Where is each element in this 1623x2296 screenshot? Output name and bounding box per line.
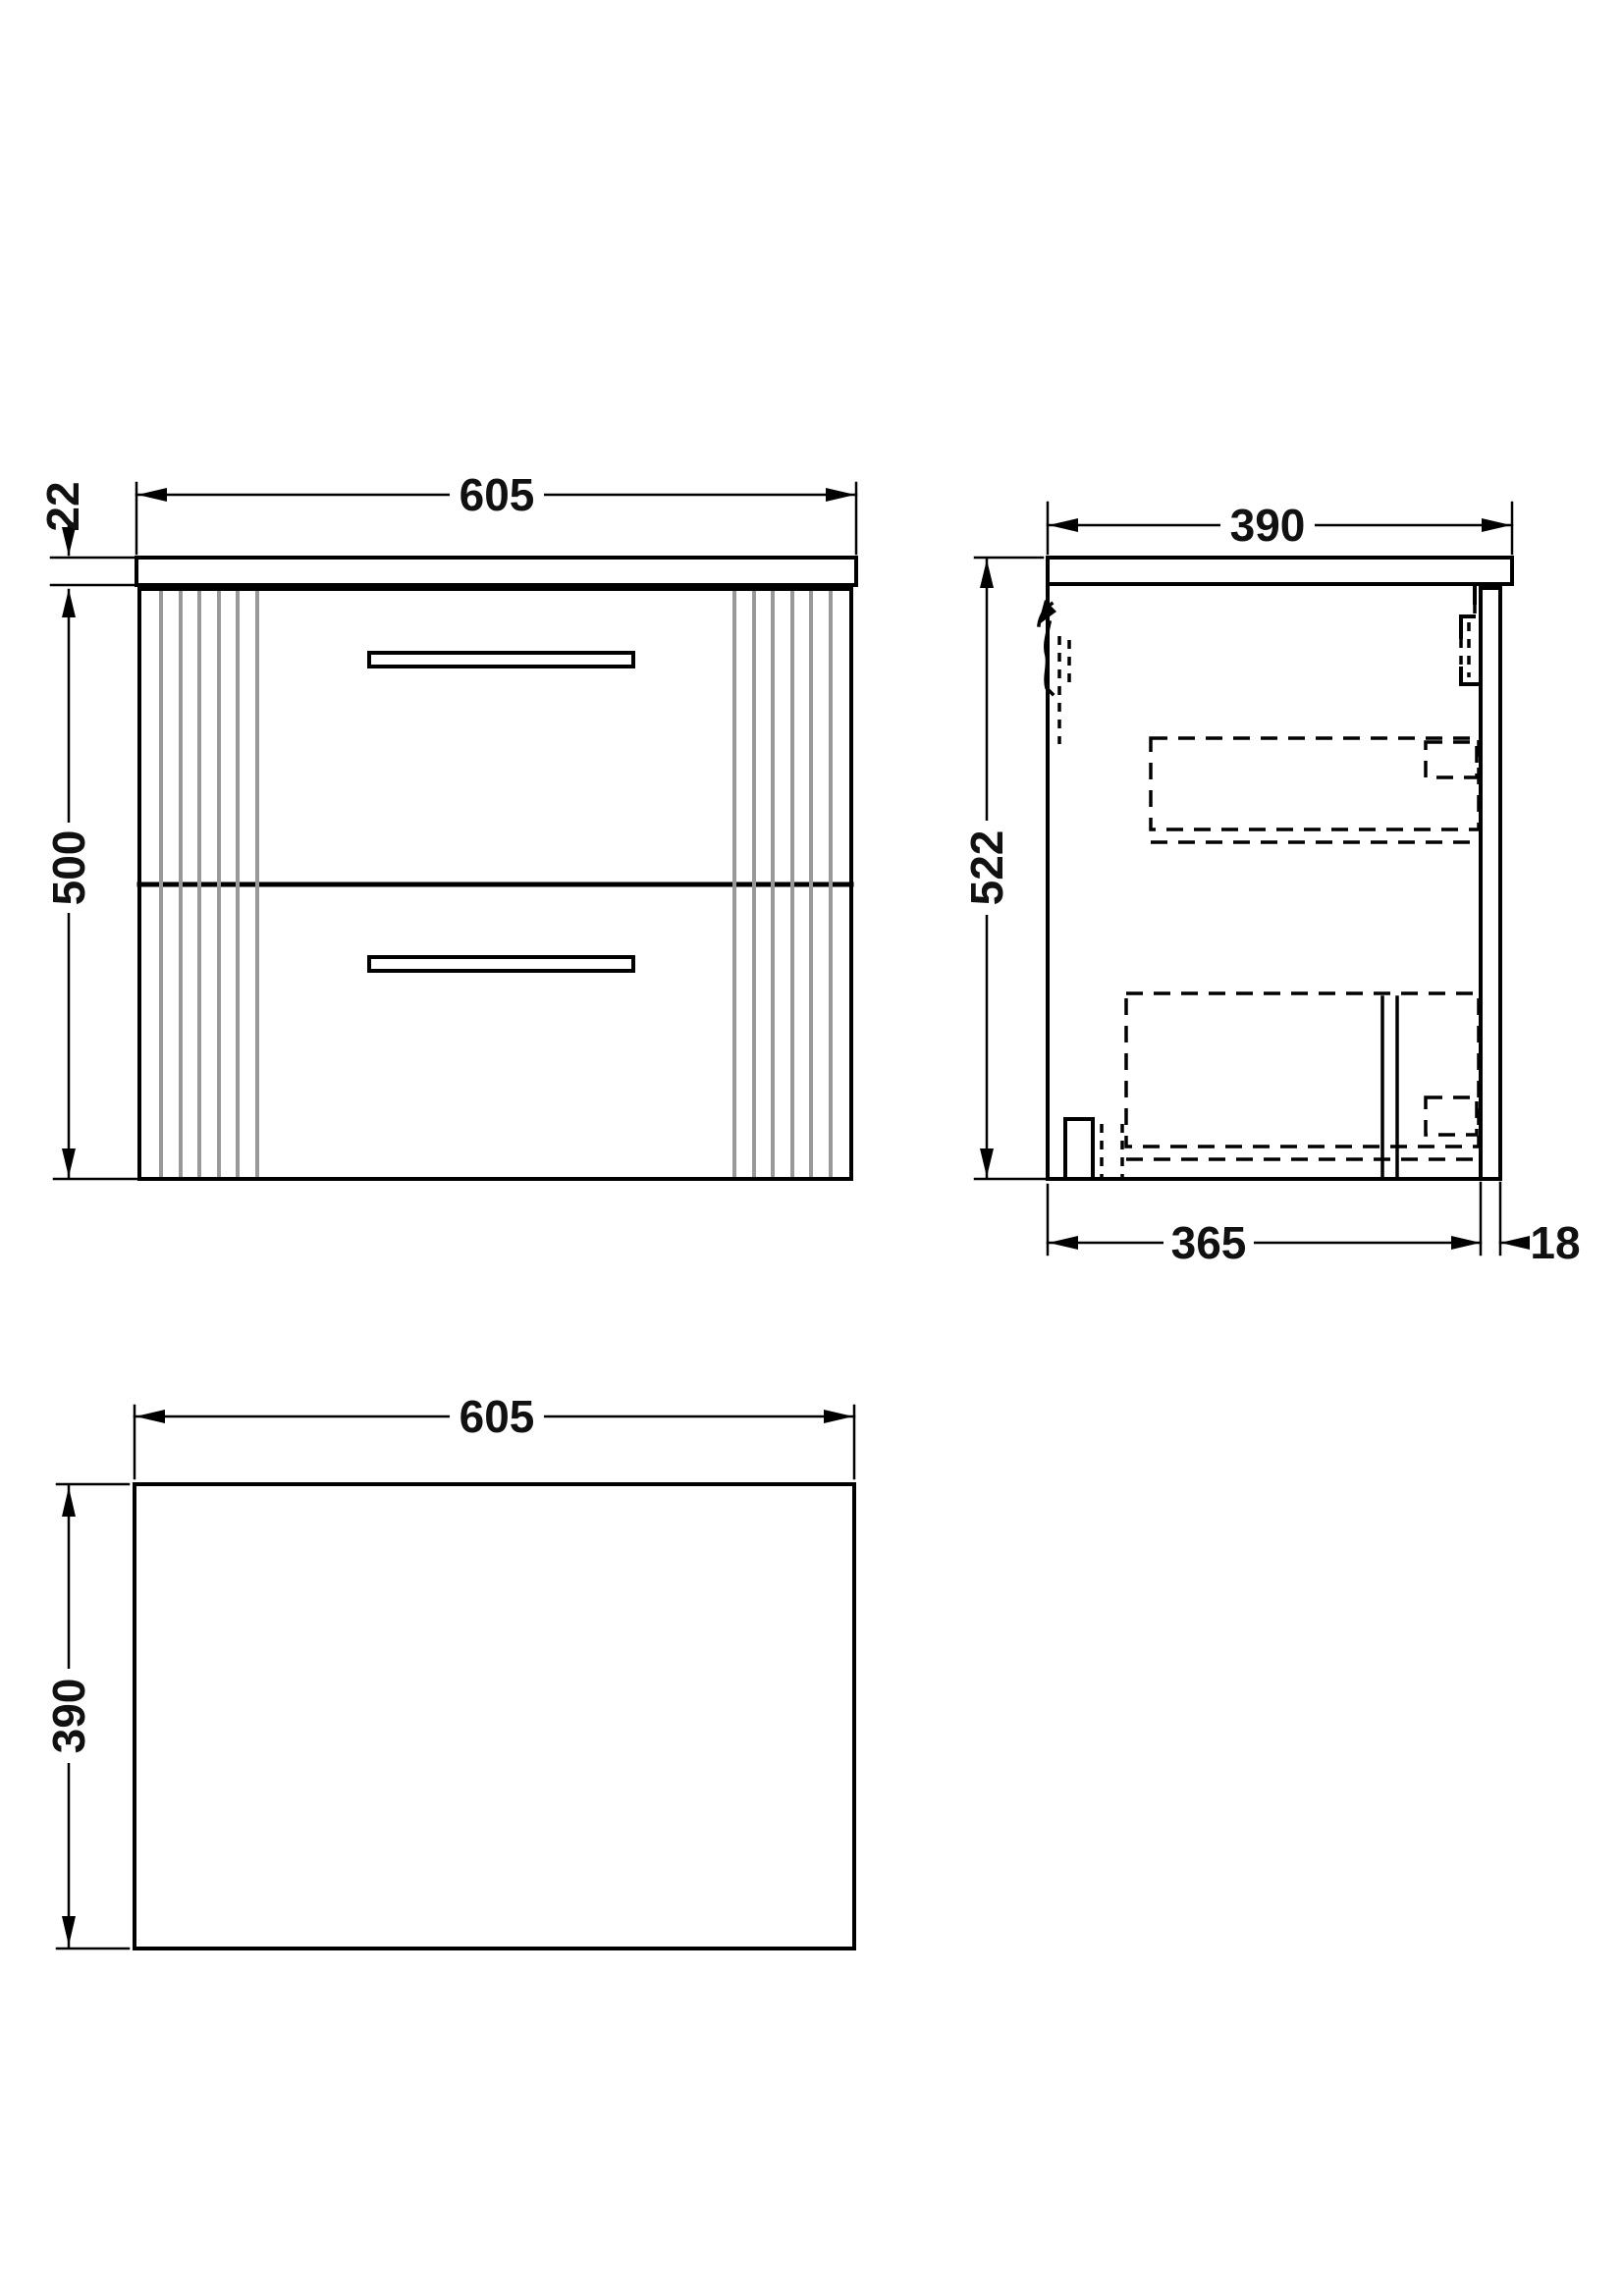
technical-drawing-page: 605 22 500 — [0, 0, 1623, 2296]
side-height-dimension: 522 — [961, 558, 1045, 1179]
plan-outline — [135, 1484, 854, 1949]
side-depth-dim-label: 390 — [1230, 500, 1306, 551]
lower-drawer-runner — [1426, 1097, 1477, 1135]
plan-width-dim-label: 605 — [460, 1391, 535, 1442]
wall-hanger-bracket-right — [1461, 588, 1480, 684]
side-back-panel — [1481, 588, 1500, 1179]
carcass-depth-dimension: 365 — [1048, 1183, 1481, 1268]
side-height-dim-label: 522 — [961, 830, 1012, 906]
carcass-depth-dim-label: 365 — [1171, 1217, 1247, 1268]
worktop-thickness-dimension: 22 — [37, 481, 135, 585]
front-height-dim-label: 500 — [43, 830, 94, 906]
lower-drawer-hidden-outline — [1065, 993, 1479, 1179]
plan-view: 605 390 — [43, 1391, 854, 1949]
side-view: 390 522 365 18 — [961, 500, 1581, 1268]
front-worktop — [136, 558, 856, 585]
vanity-unit-dimension-drawing: 605 22 500 — [0, 0, 1623, 2296]
plan-depth-dim-label: 390 — [43, 1679, 94, 1754]
back-panel-dimension: 18 — [1500, 1183, 1581, 1268]
back-panel-dim-label: 18 — [1530, 1217, 1580, 1268]
upper-drawer-hidden-outline — [1151, 738, 1479, 842]
worktop-thickness-dim-label: 22 — [37, 481, 88, 531]
side-worktop — [1048, 558, 1512, 584]
front-view: 605 22 500 — [37, 469, 856, 1179]
front-height-dimension: 500 — [43, 589, 136, 1179]
front-width-dim-label: 605 — [460, 469, 535, 520]
top-drawer-handle — [369, 653, 633, 667]
upper-drawer-runner — [1426, 742, 1477, 777]
plan-width-dimension: 605 — [135, 1391, 854, 1478]
side-depth-dimension: 390 — [1048, 500, 1512, 554]
plan-depth-dimension: 390 — [43, 1484, 129, 1949]
bottom-front-step — [1065, 1119, 1093, 1179]
front-width-dimension: 605 — [136, 469, 856, 554]
bottom-drawer-handle — [369, 957, 633, 971]
wall-hanger-bracket-left — [1038, 600, 1069, 744]
